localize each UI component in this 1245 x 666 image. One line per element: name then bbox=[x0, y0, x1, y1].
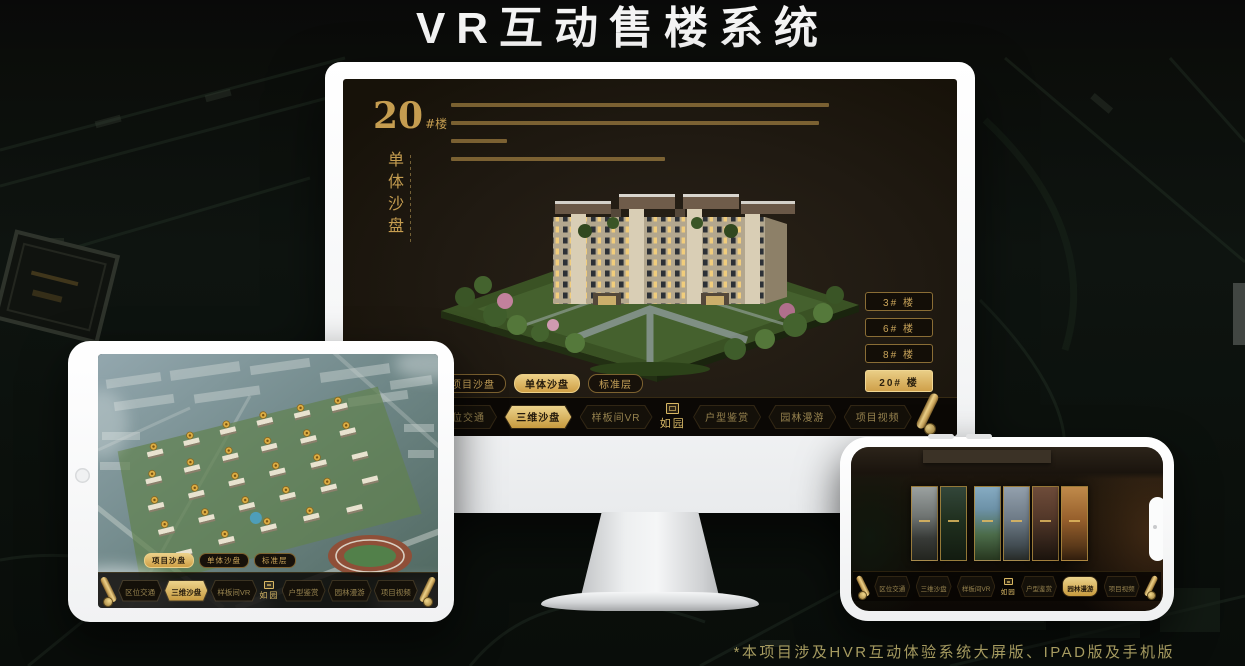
tab-standard-floor[interactable]: 标准层 bbox=[254, 553, 296, 568]
building-button-20[interactable]: 20# 楼 bbox=[865, 370, 933, 392]
building-button-label: 3# 楼 bbox=[883, 294, 915, 309]
monitor-stand-base bbox=[541, 592, 759, 611]
interior-ceiling bbox=[851, 447, 1163, 479]
phone-screen: 区位交通 三维沙盘 样板间VR 如园 户型鉴赏 园林漫游 项目视频 bbox=[851, 447, 1163, 611]
menu-item-transport[interactable]: 区位交通 bbox=[874, 576, 910, 597]
tablet-screen: 项目沙盘 单体沙盘 标准层 区位交通 三维沙盘 样板间VR 如园 户型鉴赏 园林… bbox=[98, 354, 438, 608]
aerial-masterplan[interactable] bbox=[98, 354, 438, 608]
gallery-panel-4[interactable] bbox=[1003, 486, 1030, 561]
stage: VR互动售楼系统 20#楼 单体沙盘 bbox=[0, 0, 1245, 666]
menu-item-transport[interactable]: 区位交通 bbox=[118, 580, 162, 602]
menu-item-3d-sandbox[interactable]: 三维沙盘 bbox=[164, 580, 208, 602]
tablet-view-tabs: 项目沙盘 单体沙盘 标准层 bbox=[144, 553, 296, 568]
phone-menubar: 区位交通 三维沙盘 样板间VR 如园 户型鉴赏 园林漫游 项目视频 bbox=[853, 571, 1161, 601]
gallery-panel-6[interactable] bbox=[1061, 486, 1088, 561]
tab-single-sandbox[interactable]: 单体沙盘 bbox=[514, 374, 580, 393]
brand-logo: 如园 bbox=[259, 581, 279, 601]
seal-icon bbox=[264, 581, 274, 589]
scroll-icon[interactable] bbox=[919, 392, 935, 434]
menu-item-model-room-vr[interactable]: 样板间VR bbox=[957, 576, 996, 597]
scroll-icon[interactable] bbox=[1145, 575, 1155, 599]
brand-logo: 如园 bbox=[1001, 578, 1016, 596]
gallery-panel-3[interactable] bbox=[974, 486, 1001, 561]
heading-vertical-label: 单体沙盘 bbox=[381, 151, 405, 243]
menu-item-model-room-vr[interactable]: 样板间VR bbox=[210, 580, 257, 602]
footnote-text: *本项目涉及HVR互动体验系统大屏版、IPAD版及手机版 bbox=[734, 641, 1175, 662]
description-line bbox=[451, 121, 819, 125]
gallery-panel-5[interactable] bbox=[1032, 486, 1059, 561]
seal-icon bbox=[666, 403, 679, 414]
scroll-icon[interactable] bbox=[104, 576, 116, 606]
description-line bbox=[451, 103, 829, 107]
menu-item-unit-gallery[interactable]: 户型鉴赏 bbox=[693, 405, 761, 429]
tab-project-sandbox[interactable]: 项目沙盘 bbox=[144, 553, 194, 568]
monitor-stand-neck bbox=[581, 512, 719, 596]
menu-item-project-video[interactable]: 项目视频 bbox=[374, 580, 418, 602]
building-button-3[interactable]: 3# 楼 bbox=[865, 292, 933, 311]
gallery-panel-2[interactable] bbox=[940, 486, 967, 561]
phone-device: 区位交通 三维沙盘 样板间VR 如园 户型鉴赏 园林漫游 项目视频 bbox=[840, 437, 1174, 621]
menu-item-unit-gallery[interactable]: 户型鉴赏 bbox=[282, 580, 326, 602]
menu-item-project-video[interactable]: 项目视频 bbox=[844, 405, 912, 429]
gallery-panel-1[interactable] bbox=[911, 486, 938, 561]
building-button-label: 8# 楼 bbox=[883, 346, 915, 361]
tab-single-sandbox[interactable]: 单体沙盘 bbox=[199, 553, 249, 568]
menu-item-garden-tour[interactable]: 园林漫游 bbox=[328, 580, 372, 602]
phone-volume-button[interactable] bbox=[928, 434, 954, 439]
tablet-device: 项目沙盘 单体沙盘 标准层 区位交通 三维沙盘 样板间VR 如园 户型鉴赏 园林… bbox=[68, 341, 454, 622]
tablet-home-button[interactable] bbox=[75, 468, 90, 483]
menu-item-3d-sandbox[interactable]: 三维沙盘 bbox=[916, 576, 952, 597]
scroll-icon[interactable] bbox=[859, 575, 869, 599]
menu-item-garden-tour[interactable]: 园林漫游 bbox=[768, 405, 836, 429]
building-number-value: 20 bbox=[373, 95, 423, 137]
seal-icon bbox=[1004, 578, 1013, 585]
menu-item-unit-gallery[interactable]: 户型鉴赏 bbox=[1021, 576, 1057, 597]
scroll-icon[interactable] bbox=[420, 576, 432, 606]
brand-logo-text: 如园 bbox=[1001, 586, 1016, 596]
monitor-view-tabs: 项目沙盘 单体沙盘 标准层 bbox=[440, 374, 643, 393]
menu-item-3d-sandbox[interactable]: 三维沙盘 bbox=[504, 405, 572, 429]
building-button-6[interactable]: 6# 楼 bbox=[865, 318, 933, 337]
building-selector: 3# 楼 6# 楼 8# 楼 20# 楼 bbox=[865, 292, 933, 392]
phone-notch bbox=[1149, 497, 1163, 561]
building-button-8[interactable]: 8# 楼 bbox=[865, 344, 933, 363]
brand-logo: 如园 bbox=[660, 403, 686, 431]
brand-logo-text: 如园 bbox=[259, 590, 279, 601]
page-title: VR互动售楼系统 bbox=[0, 0, 1245, 57]
menu-item-model-room-vr[interactable]: 样板间VR bbox=[580, 405, 653, 429]
heading-divider bbox=[410, 155, 411, 243]
tab-standard-floor[interactable]: 标准层 bbox=[588, 374, 643, 393]
phone-volume-button[interactable] bbox=[966, 434, 992, 439]
brand-logo-text: 如园 bbox=[660, 415, 686, 431]
tablet-menubar: 区位交通 三维沙盘 样板间VR 如园 户型鉴赏 园林漫游 项目视频 bbox=[98, 572, 438, 608]
building-button-label: 6# 楼 bbox=[883, 320, 915, 335]
menu-item-project-video[interactable]: 项目视频 bbox=[1104, 576, 1140, 597]
building-3d-render[interactable] bbox=[435, 125, 865, 383]
building-button-label: 20# 楼 bbox=[879, 374, 918, 389]
menu-item-garden-tour[interactable]: 园林漫游 bbox=[1062, 576, 1098, 597]
